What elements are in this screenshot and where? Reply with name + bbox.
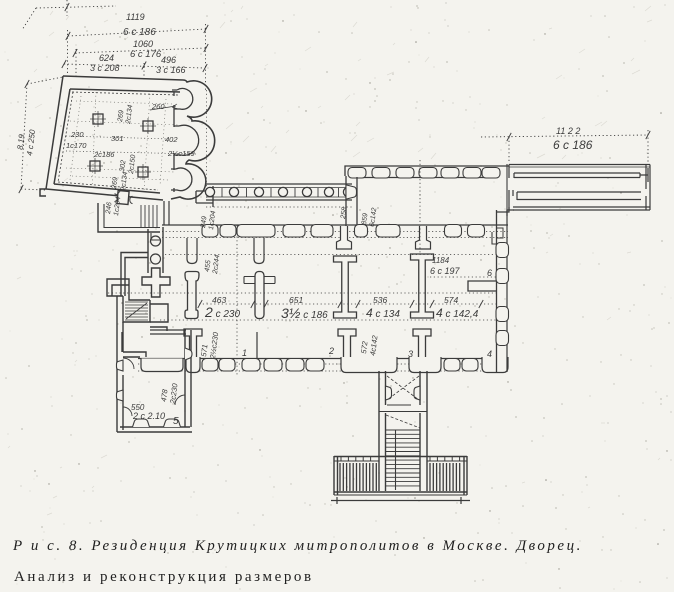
svg-text:301: 301 bbox=[111, 134, 124, 143]
svg-text:6: 6 bbox=[487, 268, 492, 278]
svg-text:651: 651 bbox=[289, 295, 303, 305]
svg-text:4 c 134: 4 c 134 bbox=[366, 306, 400, 320]
svg-text:496: 496 bbox=[161, 55, 176, 65]
svg-text:Р и с. 8. Резиденция Крутицк: Р и с. 8. Резиденция Крутицких митрополи… bbox=[12, 538, 583, 554]
svg-text:3: 3 bbox=[408, 349, 413, 359]
svg-text:624: 624 bbox=[99, 53, 114, 63]
svg-text:2: 2 bbox=[328, 346, 334, 356]
svg-text:302: 302 bbox=[119, 160, 127, 173]
svg-text:2c186: 2c186 bbox=[93, 150, 115, 159]
svg-text:230: 230 bbox=[70, 130, 84, 139]
svg-text:1184: 1184 bbox=[432, 256, 450, 265]
svg-text:4: 4 bbox=[487, 349, 492, 359]
svg-text:3 c 208: 3 c 208 bbox=[90, 63, 120, 73]
svg-text:6 c 197: 6 c 197 bbox=[430, 266, 461, 276]
svg-text:2 c 2.10: 2 c 2.10 bbox=[132, 411, 165, 421]
svg-text:1060: 1060 bbox=[133, 39, 153, 49]
svg-text:1119: 1119 bbox=[126, 12, 145, 22]
svg-text:455: 455 bbox=[204, 260, 212, 273]
svg-text:536: 536 bbox=[373, 295, 387, 305]
svg-text:6 c 186: 6 c 186 bbox=[553, 138, 593, 152]
svg-text:1c170: 1c170 bbox=[66, 141, 87, 150]
svg-text:6 c 176: 6 c 176 bbox=[130, 49, 162, 60]
svg-text:1: 1 bbox=[242, 348, 247, 358]
svg-text:463: 463 bbox=[212, 295, 226, 305]
svg-text:574: 574 bbox=[444, 295, 458, 305]
svg-text:4 c 142,4: 4 c 142,4 bbox=[436, 306, 479, 320]
svg-text:859: 859 bbox=[361, 213, 369, 226]
svg-text:Анализ и реконструкция размеро: Анализ и реконструкция размеров bbox=[14, 569, 314, 585]
svg-text:3 c 166: 3 c 166 bbox=[156, 65, 186, 75]
svg-text:11 2 2: 11 2 2 bbox=[556, 126, 580, 136]
svg-text:402: 402 bbox=[165, 135, 178, 144]
svg-text:6 c 186: 6 c 186 bbox=[123, 27, 156, 38]
svg-text:2½c159: 2½c159 bbox=[167, 149, 196, 158]
svg-text:5: 5 bbox=[173, 416, 179, 427]
